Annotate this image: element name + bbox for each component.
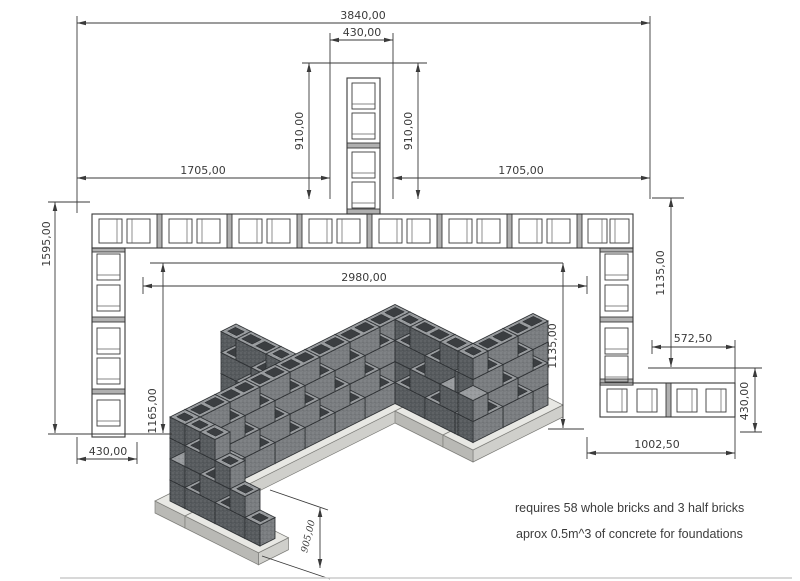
dimension-label-inner_width: 2980,00	[341, 271, 387, 284]
dimension-label-right_wing_length: 1002,50	[634, 438, 680, 451]
dimension-label-right_span: 1705,00	[498, 164, 544, 177]
dimension-label-right_inset: 572,50	[674, 332, 713, 345]
technical-drawing: 3840,00430,00910,00910,001705,001705,001…	[0, 0, 800, 581]
drawing-page: 3840,00430,00910,00910,001705,001705,001…	[0, 0, 800, 581]
dimension-label-right_wing_width: 430,00	[738, 382, 751, 421]
dimension-left_span: 1705,00	[77, 164, 330, 180]
dimension-right_span: 1705,00	[393, 164, 650, 180]
dimension-annotations: 3840,00430,00910,00910,001705,001705,001…	[40, 9, 762, 579]
dimension-label-pier_width: 430,00	[343, 26, 382, 39]
dimension-label-left_wall_width: 430,00	[89, 445, 128, 458]
dimension-left_wall_width: 430,00	[77, 437, 137, 464]
dimension-label-left_side_length: 1595,00	[40, 221, 53, 267]
note-bricks: requires 58 whole bricks and 3 half bric…	[515, 501, 744, 515]
dimension-label-overall_width: 3840,00	[340, 9, 386, 22]
dimension-label-pier_length_left: 910,00	[293, 112, 306, 151]
dimension-label-right_outer_length: 1135,00	[654, 250, 667, 296]
dimension-label-pier_length_right: 910,00	[402, 112, 415, 151]
dimension-right_inset: 572,50	[652, 332, 735, 354]
dimension-label-wall_height: 905,00	[299, 519, 318, 554]
isometric-view	[155, 305, 563, 565]
note-concrete: aprox 0.5m^3 of concrete for foundations	[516, 527, 743, 541]
dimension-label-right_inner_length: 1135,00	[546, 323, 559, 369]
dimension-pier_length_right: 910,00	[402, 63, 420, 199]
dimension-label-left_inner_length: 1165,00	[146, 388, 159, 434]
dimension-inner_width: 2980,00	[143, 271, 587, 294]
dimension-label-left_span: 1705,00	[180, 164, 226, 177]
